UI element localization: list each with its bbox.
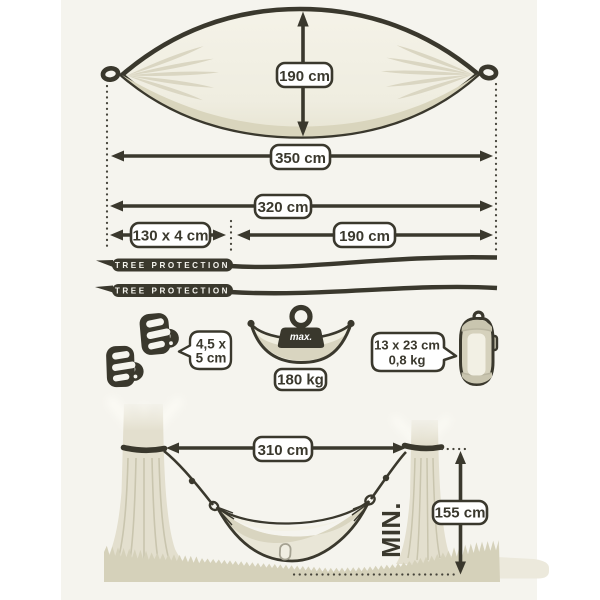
svg-text:TREE PROTECTION: TREE PROTECTION <box>115 287 230 296</box>
svg-text:MIN.: MIN. <box>378 502 406 558</box>
svg-text:13 x 23 cm: 13 x 23 cm <box>374 338 440 353</box>
svg-text:TREE PROTECTION: TREE PROTECTION <box>115 261 230 270</box>
svg-text:0,8 kg: 0,8 kg <box>389 353 426 368</box>
svg-text:max.: max. <box>290 332 312 343</box>
svg-text:155 cm: 155 cm <box>435 505 486 522</box>
svg-text:350 cm: 350 cm <box>275 150 326 167</box>
svg-text:190 cm: 190 cm <box>279 68 330 85</box>
svg-text:320 cm: 320 cm <box>258 199 309 216</box>
svg-text:4,5 x: 4,5 x <box>196 337 227 352</box>
svg-text:130 x 4 cm: 130 x 4 cm <box>133 228 209 245</box>
svg-text:190 cm: 190 cm <box>339 228 390 245</box>
svg-text:180 kg: 180 kg <box>277 372 324 389</box>
svg-text:5 cm: 5 cm <box>196 351 227 366</box>
svg-text:310 cm: 310 cm <box>258 442 309 459</box>
